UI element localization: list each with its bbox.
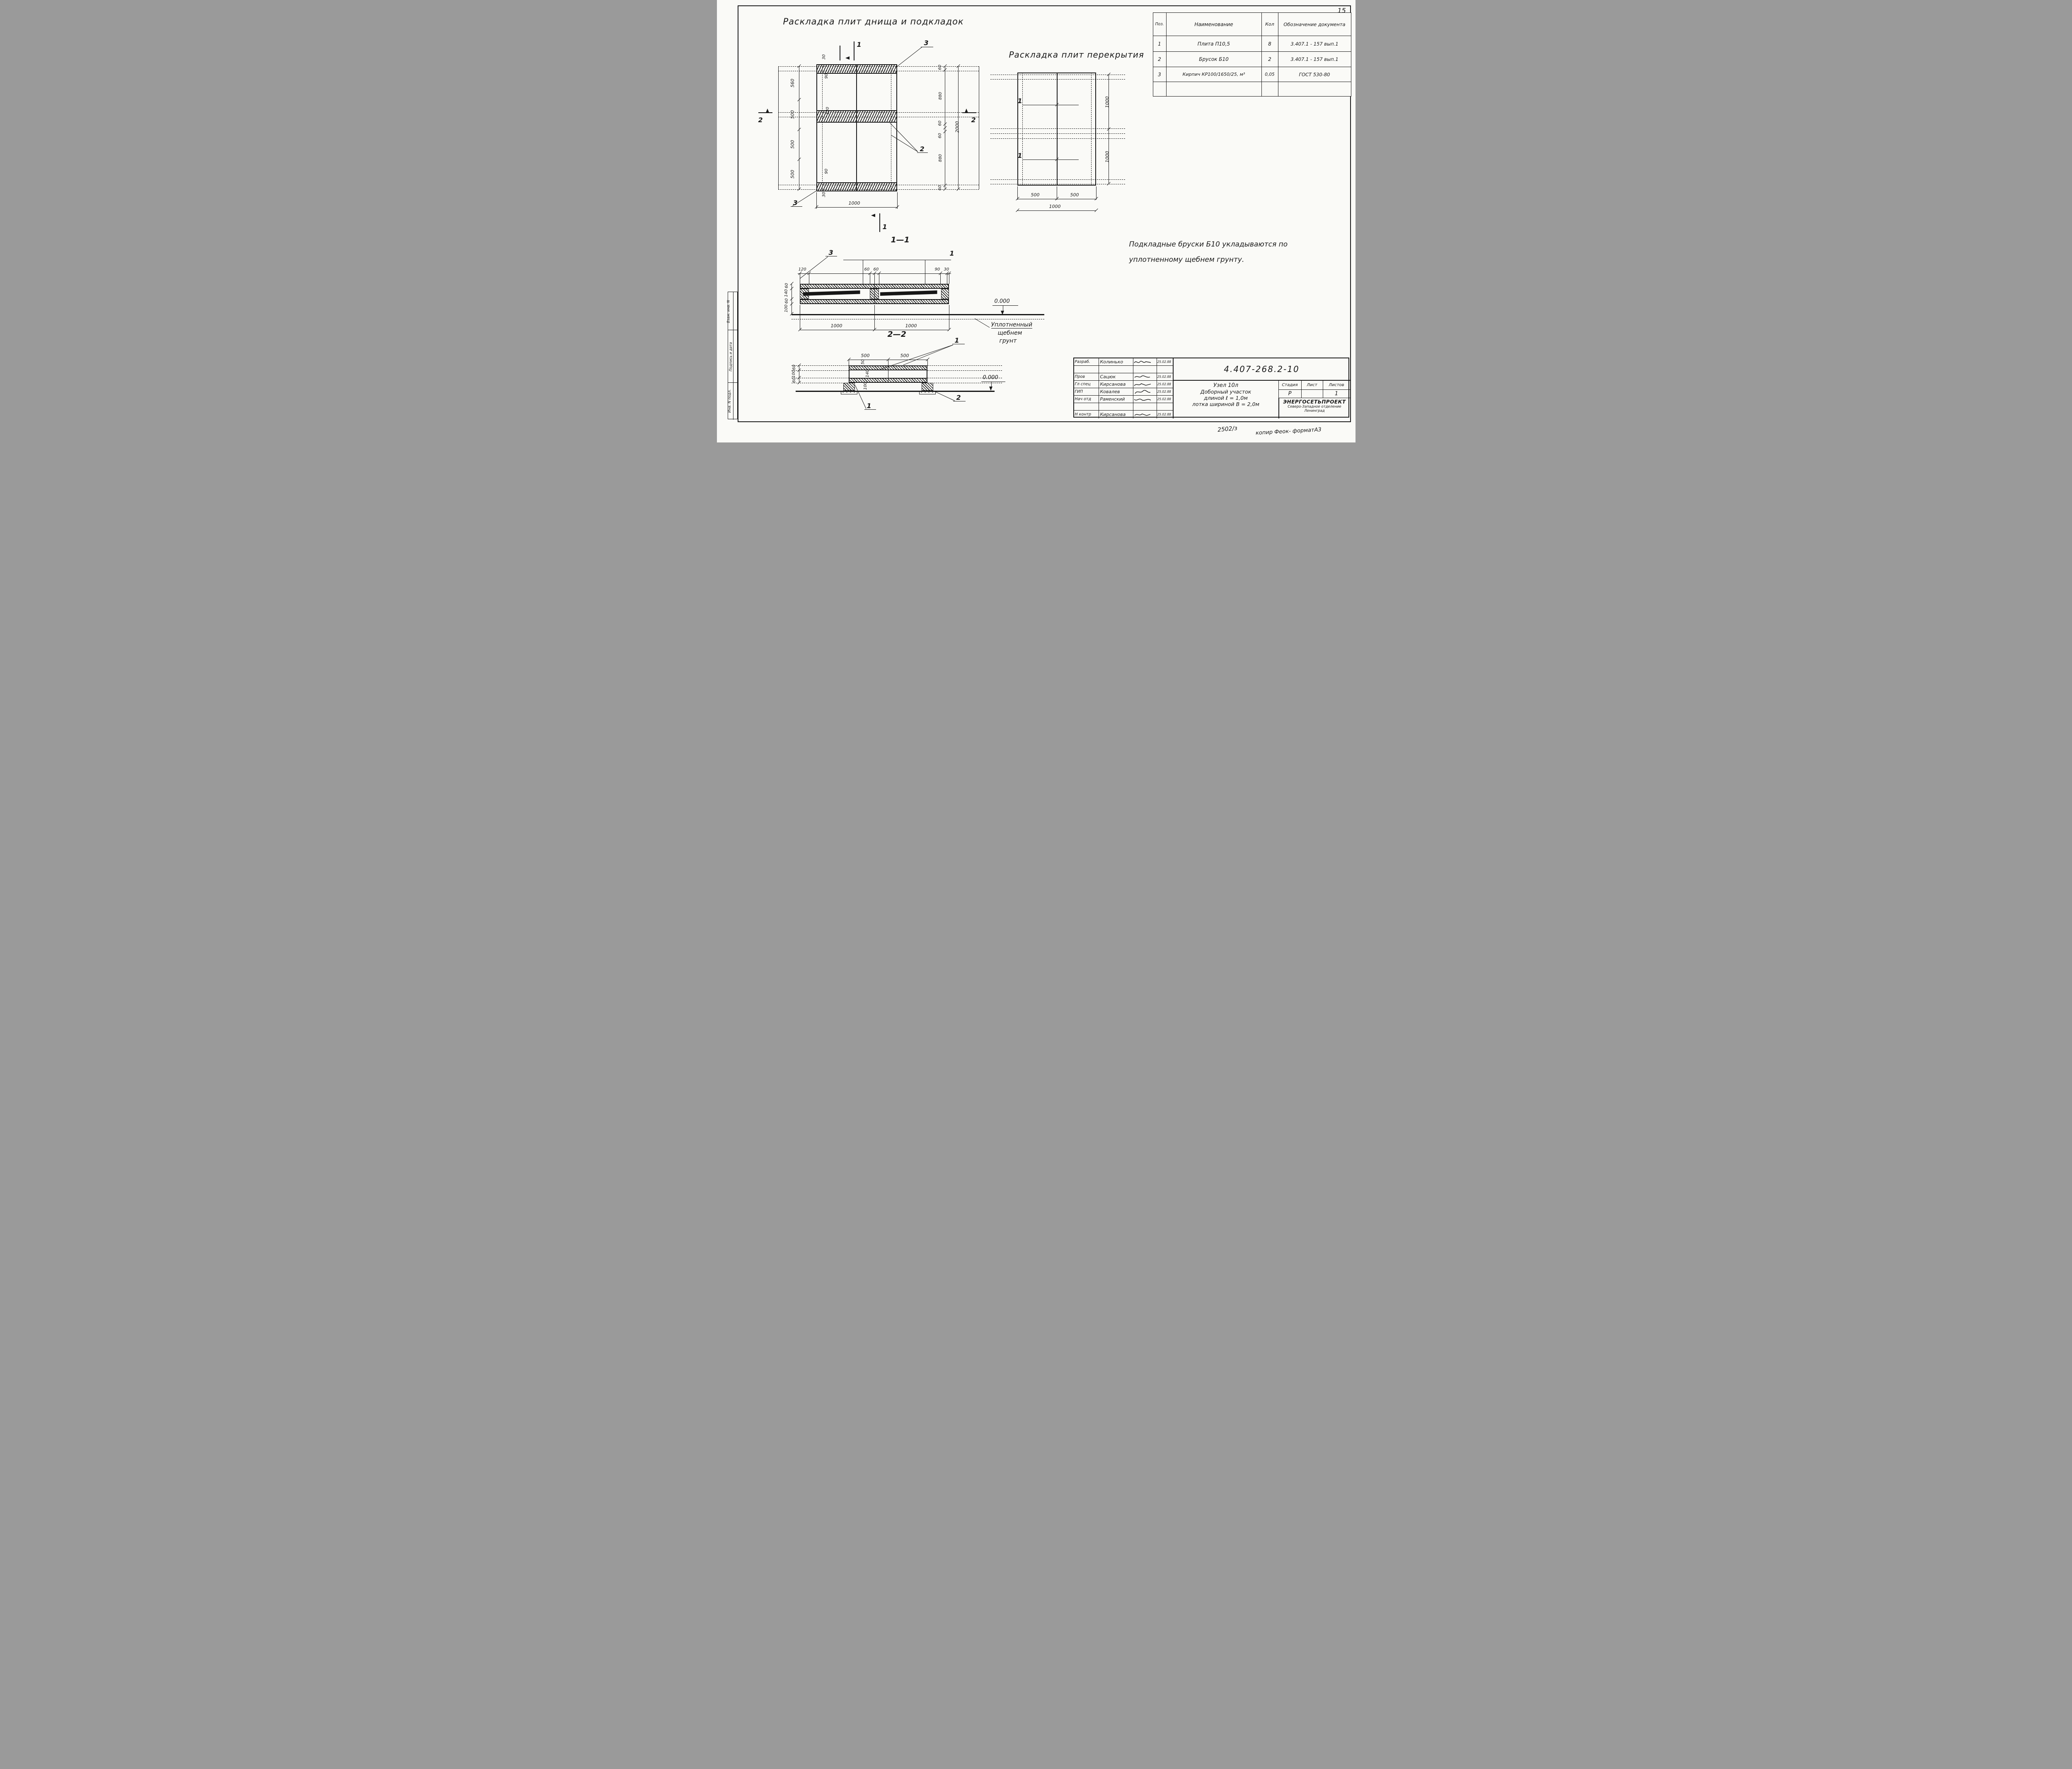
stamp-signature [1133, 373, 1157, 381]
dim-label: 60 [784, 283, 789, 288]
stamp-name: Колинько [1099, 358, 1133, 366]
sidebar: Взам. инв. N Подпись и дата Инв. N подл. [728, 292, 738, 419]
ext-line [947, 273, 947, 284]
stamp-role [1074, 366, 1099, 373]
ext-line [800, 305, 800, 330]
callout-label: 2 [920, 145, 925, 153]
callout-shelf [864, 409, 876, 410]
ground-label: Уплотненный [991, 321, 1033, 329]
stamp-name: Кирсанова [1099, 411, 1133, 418]
joint-wedge [803, 290, 860, 296]
dim-label: 60 [792, 377, 796, 383]
section-mark-line [879, 213, 880, 232]
parts-row: 1 Плита П10,5 8 3.407.1 - 157 вып.1 [1153, 36, 1351, 52]
doc-number: 4.407-268.2-10 [1173, 358, 1350, 381]
sidebar-label: Инв. N подл. [728, 389, 732, 413]
section-mark-label: 2 [758, 116, 763, 124]
dim-label: 500 [790, 110, 795, 119]
callout-label: 1 [867, 402, 871, 410]
ground-dashed [792, 319, 1044, 319]
plate-joint [856, 64, 857, 191]
dim-label: 60 [792, 365, 796, 370]
dim-label: 1000 [1104, 97, 1110, 108]
sheet-value [1301, 390, 1323, 398]
stamp-title-line: Узел 10л [1174, 382, 1278, 389]
hidden-edge [778, 66, 979, 67]
plan1-figure: 560 500 500 500 60 880 60 60 880 60 2000… [758, 41, 990, 238]
stamp-date: 25.02.88 [1157, 381, 1173, 388]
lower-plate-edge [778, 66, 779, 189]
dim-label: 500 [790, 170, 795, 179]
dim-label: 30 [821, 192, 826, 197]
dim-label: 880 [938, 92, 943, 100]
hidden-edge [927, 370, 1002, 371]
callout-leader [925, 260, 925, 284]
callout-label: 1 [955, 336, 959, 344]
hidden-edge [990, 79, 1125, 80]
ext-line [809, 273, 809, 284]
section-mark-label: 1 [857, 41, 862, 48]
sidebar-cell-empty [733, 330, 738, 383]
callout-leader [792, 191, 816, 206]
dim-label: 560 [790, 79, 795, 87]
stamp-name: Сацюк [1099, 373, 1133, 381]
callout-label: 3 [924, 39, 929, 47]
ground-line [796, 391, 995, 392]
brusok [843, 383, 855, 391]
section1-title: 1—1 [891, 235, 910, 244]
dim-label: 120 [799, 267, 806, 272]
stamp-name [1099, 366, 1133, 373]
org-name: ЭНЕРГОСЕТЬПРОЕКТ [1279, 399, 1350, 405]
hidden-edge [990, 138, 1125, 139]
stamp-title-line: длиной ℓ = 1,0м [1174, 395, 1278, 401]
dim-line [816, 207, 897, 208]
stamp-signature [1133, 381, 1157, 388]
ext-line [879, 273, 879, 284]
parts-cell: 3.407.1 - 157 вып.1 [1278, 52, 1351, 67]
ext-line [927, 360, 928, 365]
parts-header-pos: Поз. [1153, 13, 1166, 36]
stamp-date: 25.02.88 [1157, 411, 1173, 418]
parts-header-doc: Обозначение документа [1278, 13, 1351, 36]
dim-label: 100 [863, 382, 868, 390]
callout-leader [897, 47, 922, 67]
dim-line [1017, 210, 1096, 211]
ground-label: щебнем [998, 330, 1022, 336]
stamp-signature [1133, 388, 1157, 396]
level-arrow-icon [1001, 311, 1004, 317]
signature-icon [1133, 374, 1152, 380]
callout-shelf [921, 47, 933, 47]
parts-cell: 3 [1153, 67, 1166, 82]
section-mark-line [840, 46, 840, 60]
footer-note-right: копир Феок- форматА3 [1255, 427, 1321, 436]
dim-label: 1000 [1049, 204, 1061, 209]
sidebar-label: Взам. инв. N [726, 300, 731, 323]
sidebar-cell-empty [733, 292, 738, 330]
stamp-name [1099, 403, 1133, 411]
level-shelf [992, 305, 1018, 306]
parts-header-qty: Кол [1261, 13, 1278, 36]
callout-label: 1 [1018, 97, 1022, 105]
dim-label: 1000 [905, 323, 917, 329]
callout-leader [863, 260, 863, 284]
parts-cell: 8 [1261, 36, 1278, 52]
parts-row-empty [1153, 82, 1351, 97]
plan1-title: Раскладка плит днища и подкладок [783, 17, 964, 27]
hidden-edge [927, 365, 1002, 366]
stamp-date: 25.02.88 [1157, 358, 1173, 366]
section2-figure: 500 500 60 100 60 50 140 100 [779, 340, 1077, 441]
stamp-title-line: Доборный участок [1174, 389, 1278, 395]
parts-row: 2 Брусок Б10 2 3.407.1 - 157 вып.1 [1153, 52, 1351, 67]
stamp-signature [1133, 366, 1157, 373]
hidden-edge [792, 383, 849, 383]
stamp-role: Пров [1074, 373, 1099, 381]
dim-label: 30 [944, 267, 949, 272]
dim-label: 1000 [1104, 151, 1110, 163]
section-mark-line [854, 41, 854, 60]
callout-leader [974, 318, 990, 327]
section-arrow-icon [869, 214, 875, 217]
level-label: 0.000 [983, 375, 998, 381]
hidden-edge [792, 378, 849, 378]
plate-joint [1057, 72, 1058, 186]
sidebar-cell: Инв. N подл. [728, 382, 733, 420]
stamp-name: Раменский [1099, 396, 1133, 403]
stamp-role: Разраб. [1074, 358, 1099, 366]
parts-cell: Плита П10,5 [1166, 36, 1261, 52]
callout-label: 1 [950, 249, 954, 257]
ext-line [940, 273, 941, 284]
dim-label: 60 [864, 267, 870, 272]
sheets-label: Листов [1323, 381, 1350, 390]
callout-label: 3 [829, 249, 833, 256]
dim-label: 30 [821, 54, 826, 60]
dim-label: 100 [784, 304, 789, 312]
dim-line [799, 365, 799, 383]
stamp-date [1157, 403, 1173, 411]
sheets-value: 1 [1323, 390, 1350, 398]
stamp-signature [1133, 396, 1157, 403]
hidden-edge [1022, 72, 1023, 186]
org-cell: ЭНЕРГОСЕТЬПРОЕКТ Северо-Западное отделен… [1278, 398, 1350, 418]
hidden-edge [778, 189, 979, 190]
parts-header-name: Наименование [1166, 13, 1261, 36]
hidden-edge [927, 383, 1002, 383]
parts-cell [1278, 82, 1351, 97]
parts-cell: 2 [1261, 52, 1278, 67]
stamp-title-line: лотка шириной В = 2,0м [1174, 401, 1278, 407]
signature-icon [1133, 412, 1152, 418]
dim-label: 60 [874, 267, 879, 272]
hidden-edge [778, 117, 979, 117]
sheet-label: Лист [1301, 381, 1323, 390]
parts-cell: 0,05 [1261, 67, 1278, 82]
section-mark-line [758, 112, 772, 113]
parts-cell [1153, 82, 1166, 97]
section-arrow-icon [965, 107, 968, 113]
callout-leader [903, 345, 953, 365]
stamp-name: Ковалев [1099, 388, 1133, 396]
stamp-date: 25.02.88 [1157, 373, 1173, 381]
signature-icon [1133, 359, 1152, 365]
parts-cell: Кирпич КР100/1650/25, м³ [1166, 67, 1261, 82]
dim-line [799, 66, 799, 189]
org-city: Ленинград [1279, 409, 1350, 413]
ext-line [800, 273, 800, 284]
note-line-2: уплотненному щебнем грунту. [1129, 256, 1244, 264]
parts-cell [1261, 82, 1278, 97]
parts-cell: 2 [1153, 52, 1166, 67]
callout-label: 1 [1018, 152, 1022, 159]
dim-label: 90 [935, 267, 940, 272]
stage-value: Р [1278, 390, 1301, 398]
stamp-role: Н контр [1074, 411, 1099, 418]
callout-leader [1023, 105, 1079, 105]
parts-cell: 3.407.1 - 157 вып.1 [1278, 36, 1351, 52]
dim-label: 60 [937, 185, 942, 191]
hidden-edge [792, 365, 849, 366]
stamp-name: Кирсанова [1099, 381, 1133, 388]
dim-label: 500 [1070, 192, 1079, 198]
callout-label: 2 [956, 394, 961, 401]
dim-label: 500 [1031, 192, 1040, 198]
parts-cell: ГОСТ 530-80 [1278, 67, 1351, 82]
hidden-edge [990, 133, 1125, 134]
stamp-role: Нач отд [1074, 396, 1099, 403]
dim-label: 500 [861, 353, 870, 358]
ext-line [870, 273, 870, 284]
dim-label: 50 [860, 359, 865, 365]
dim-label: 2000 [954, 121, 960, 133]
dim-label: 500 [790, 140, 795, 149]
stamp-date: 25.02.88 [1157, 388, 1173, 396]
signature-icon [1133, 382, 1152, 387]
parts-row: 3 Кирпич КР100/1650/25, м³ 0,05 ГОСТ 530… [1153, 67, 1351, 82]
section2-title: 2—2 [888, 330, 906, 339]
hidden-edge [990, 128, 1125, 129]
section-arrow-icon [844, 56, 850, 60]
signature-icon [1133, 389, 1152, 395]
hidden-edge [891, 64, 891, 191]
hidden-edge [990, 75, 1125, 75]
parts-cell: Брусок Б10 [1166, 52, 1261, 67]
footer-note-left: 2502/з [1217, 425, 1237, 433]
hidden-edge [792, 370, 849, 371]
stamp-signature [1133, 403, 1157, 411]
level-shelf [981, 382, 1005, 382]
dim-label: 120 [825, 107, 830, 115]
hidden-edge [778, 112, 979, 113]
level-label: 0.000 [995, 298, 1010, 304]
hidden-edge [990, 179, 1125, 180]
stamp-date [1157, 366, 1173, 373]
dim-label: 1000 [849, 201, 860, 206]
stamp-role: Гл спец [1074, 381, 1099, 388]
plate-joint [874, 284, 875, 304]
hidden-edge [778, 185, 979, 185]
stamp-role [1074, 403, 1099, 411]
section1-figure: 3 1 120 60 60 90 30 [779, 249, 1077, 346]
level-arrow-icon [989, 387, 992, 392]
stamp-role: ГИП [1074, 388, 1099, 396]
dim-label: 1000 [831, 323, 842, 329]
ext-line [888, 360, 888, 365]
dim-label: 60 [937, 121, 942, 126]
dim-label: 60 [937, 65, 942, 70]
dim-label: 140 [784, 289, 789, 297]
ground-line [792, 314, 1044, 315]
ext-line [949, 273, 949, 284]
parts-cell: 1 [1153, 36, 1166, 52]
brusok [941, 289, 949, 299]
sidebar-label: Подпись и дата [729, 342, 733, 371]
dim-label: 60 [784, 298, 789, 304]
section-mark-label: 1 [883, 223, 887, 231]
dim-label: 880 [938, 154, 943, 162]
dim-label: 90 [824, 73, 828, 79]
callout-shelf [953, 401, 966, 401]
ext-line [949, 305, 949, 330]
callout-shelf [917, 152, 928, 153]
joint-wedge [880, 290, 937, 296]
hidden-edge [778, 71, 979, 71]
section-mark-label: 2 [971, 116, 976, 124]
lower-plate-edge [979, 66, 979, 189]
stamp-signature [1133, 358, 1157, 366]
plan2-title: Раскладка плит перекрытия [1009, 50, 1144, 60]
brusok [800, 289, 809, 299]
drawing-sheet: 15 Взам. инв. N Подпись и дата Инв. N по… [717, 0, 1356, 442]
parts-table: Поз. Наименование Кол Обозначение докуме… [1153, 12, 1351, 97]
note-line-1: Подкладные бруски Б10 укладываются по [1129, 240, 1288, 249]
signature-icon [1133, 396, 1152, 402]
hidden-edge [1091, 72, 1092, 186]
callout-shelf [825, 256, 837, 256]
callout-shelf [952, 344, 965, 344]
ext-line [874, 305, 875, 330]
hidden-edge [990, 184, 1125, 184]
dim-label: 90 [824, 169, 828, 174]
plan2-figure: 1 1 1000 1000 500 500 1000 [982, 62, 1142, 236]
dim-label: 500 [900, 353, 909, 358]
ext-line [849, 360, 849, 365]
dim-label: 60 [937, 133, 942, 138]
ext-line [874, 273, 875, 284]
callout-leader [1023, 159, 1079, 160]
stamp-title: Узел 10л Доборный участок длиной ℓ = 1,0… [1173, 381, 1278, 418]
title-block: Разраб. Колинько 25.02.88 Пров Сацюк 25.… [1073, 358, 1349, 418]
parts-cell [1166, 82, 1261, 97]
stage-label: Стадия [1278, 381, 1301, 390]
dim-label: 100 [792, 370, 796, 378]
dim-label: 140 [865, 370, 870, 377]
org-branch: Северо-Западное отделение [1279, 405, 1350, 409]
section-arrow-icon [766, 107, 769, 113]
stamp-signature [1133, 411, 1157, 418]
callout-shelf [843, 260, 951, 260]
plate-joint [888, 365, 888, 383]
hidden-edge [822, 64, 823, 191]
stamp-date: 25.02.88 [1157, 396, 1173, 403]
